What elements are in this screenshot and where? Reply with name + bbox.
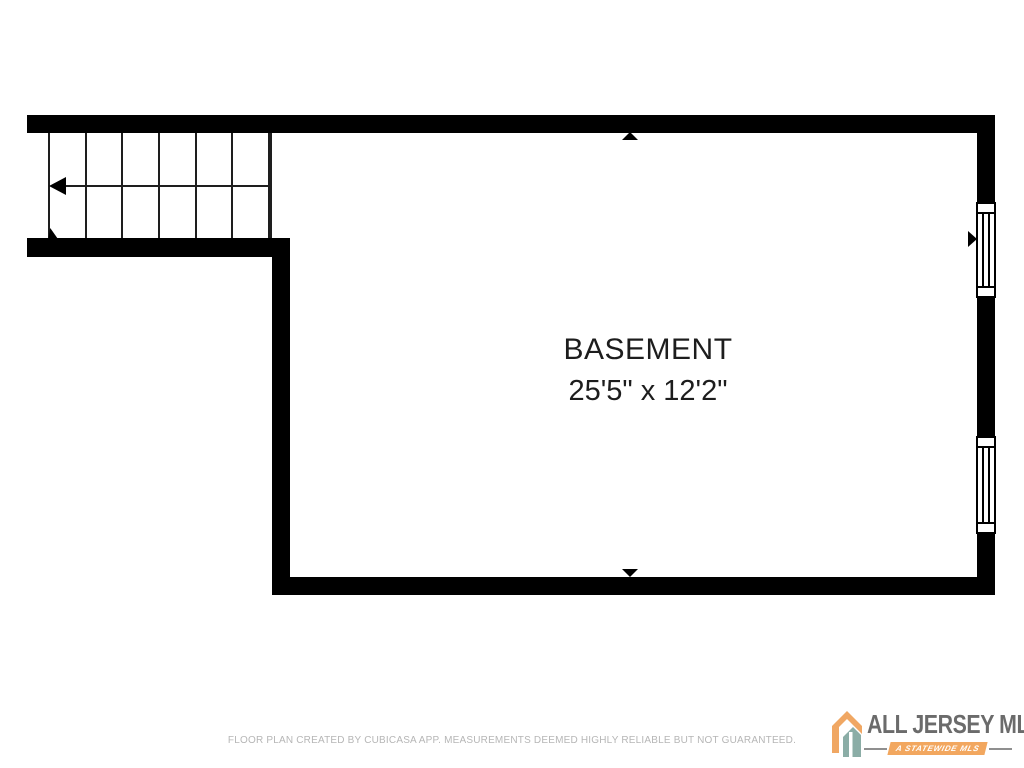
room-dimensions: 25'5" x 12'2"	[448, 375, 848, 408]
stair-walkline	[64, 185, 270, 187]
tagline-rule-left	[864, 748, 887, 750]
window-frame-line	[978, 522, 994, 524]
brand-name: ALL JERSEY MLS	[867, 709, 1024, 740]
room-name: BASEMENT	[448, 333, 848, 367]
window-glass-line	[982, 448, 990, 522]
arrow-down-icon	[622, 569, 638, 577]
window-frame-line	[978, 286, 994, 288]
arrow-right-icon	[968, 231, 977, 247]
window-lower	[976, 436, 996, 534]
tagline-rule-right	[989, 748, 1012, 750]
wall-bottom	[272, 577, 995, 595]
room-label-block: BASEMENT 25'5" x 12'2"	[448, 333, 848, 408]
house-logo-icon	[830, 707, 864, 764]
wall-room-left	[272, 238, 290, 595]
stair-entry-tick-icon	[48, 228, 63, 243]
window-upper	[976, 202, 996, 298]
brand-tagline: A STATEWIDE MLS	[888, 742, 988, 755]
wall-top	[27, 115, 995, 133]
arrow-up-icon	[622, 132, 638, 140]
arrow-left-icon	[49, 177, 66, 195]
brand-tagline-row: A STATEWIDE MLS	[864, 742, 1012, 755]
window-glass-line	[982, 214, 990, 286]
staircase	[48, 133, 272, 238]
wall-stair-bottom	[27, 238, 290, 257]
brand-logo: ALL JERSEY MLS A STATEWIDE MLS	[830, 704, 1014, 764]
